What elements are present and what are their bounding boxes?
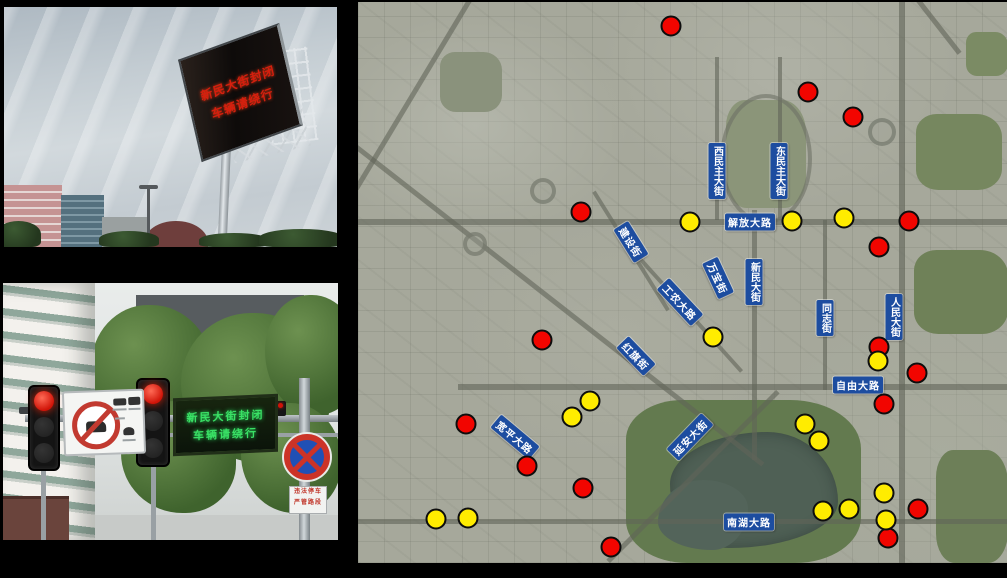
road-xinmin xyxy=(752,210,757,460)
roundabout xyxy=(868,118,896,146)
street-label-1: 东民主大街 xyxy=(771,143,788,199)
yellow-marker xyxy=(580,391,601,412)
light-off xyxy=(34,417,54,437)
map: 西民主大街东民主大街解放大路新民大街万宝街建设街工农大路同志街人民大街自由大路红… xyxy=(358,2,1007,563)
light-off xyxy=(143,411,163,431)
light-off xyxy=(143,438,163,458)
yellow-marker xyxy=(809,431,830,452)
plate-line-2: 严管路段 xyxy=(290,498,326,509)
street-label-7: 同志街 xyxy=(817,300,834,336)
red-marker xyxy=(571,202,592,223)
led-line-2: 车辆请绕行 xyxy=(193,425,258,444)
red-marker xyxy=(798,82,819,103)
no-cars-regulatory-sign xyxy=(62,389,146,457)
yellow-marker xyxy=(680,212,701,233)
yellow-marker xyxy=(782,211,803,232)
yellow-marker xyxy=(458,508,479,529)
no-stopping-sign xyxy=(284,434,330,480)
prohibition-bar xyxy=(80,408,112,442)
yellow-marker xyxy=(839,499,860,520)
led-line-1: 新民大街封闭 xyxy=(187,406,265,425)
sign-small-text xyxy=(129,408,141,410)
culture-square-ring xyxy=(720,94,812,224)
photo-intersection: 新民大街封闭 车辆请绕行 违法停车 严管路段 xyxy=(3,283,338,540)
red-marker xyxy=(601,537,622,558)
red-marker xyxy=(843,107,864,128)
red-marker xyxy=(573,478,594,499)
signal-pole-center xyxy=(151,461,156,540)
sign-small-text xyxy=(123,439,136,441)
red-marker xyxy=(661,16,682,37)
yellow-marker xyxy=(426,509,447,530)
light-off xyxy=(34,443,54,463)
street-label-9: 自由大路 xyxy=(833,377,883,394)
road-ziyou xyxy=(458,384,1007,390)
roundabout xyxy=(463,232,487,256)
signal-pole-left xyxy=(41,467,46,540)
yellow-marker xyxy=(813,501,834,522)
traffic-light-left xyxy=(28,385,60,471)
street-lamp-head xyxy=(139,185,158,189)
green-area xyxy=(966,32,1007,76)
red-marker xyxy=(874,394,895,415)
photo-billboard: 新民大街封闭 车辆请绕行 xyxy=(4,7,337,247)
yellow-marker xyxy=(562,407,583,428)
building-base xyxy=(3,496,69,540)
tree xyxy=(99,231,159,247)
yellow-marker xyxy=(868,351,889,372)
red-marker xyxy=(517,456,538,477)
roundabout xyxy=(530,178,556,204)
sign-small-text xyxy=(113,408,127,410)
red-marker xyxy=(869,237,890,258)
no-parking-plate: 违法停车 严管路段 xyxy=(289,486,327,514)
red-light-on xyxy=(34,391,54,411)
street-label-13: 南湖大路 xyxy=(724,514,774,531)
tree xyxy=(259,229,337,247)
street-label-0: 西民主大街 xyxy=(709,143,726,199)
green-area xyxy=(936,450,1007,563)
red-marker xyxy=(456,414,477,435)
sign-small-text xyxy=(115,417,125,419)
yellow-marker xyxy=(874,483,895,504)
red-marker xyxy=(907,363,928,384)
road-renmin xyxy=(899,2,905,563)
yellow-marker xyxy=(703,327,724,348)
tree xyxy=(4,221,41,247)
green-area xyxy=(914,250,1007,334)
truck-icon xyxy=(113,398,126,405)
red-light-on xyxy=(143,384,163,404)
red-marker xyxy=(532,330,553,351)
plate-line-1: 违法停车 xyxy=(290,487,326,498)
red-marker xyxy=(908,499,929,520)
yellow-marker xyxy=(834,208,855,229)
road-nanhu xyxy=(358,519,1007,524)
red-marker xyxy=(878,528,899,549)
street-label-8: 人民大街 xyxy=(886,294,903,340)
green-area xyxy=(916,114,1002,190)
green-area xyxy=(440,52,502,112)
street-label-3: 新民大街 xyxy=(746,259,763,305)
street-label-2: 解放大路 xyxy=(725,214,775,231)
bus-icon xyxy=(128,397,140,405)
yellow-marker xyxy=(876,510,897,531)
blue-glass-building xyxy=(61,195,104,247)
led-detour-sign: 新民大街封闭 车辆请绕行 xyxy=(173,394,278,457)
red-marker xyxy=(899,211,920,232)
motorcycle-icon xyxy=(123,427,134,435)
